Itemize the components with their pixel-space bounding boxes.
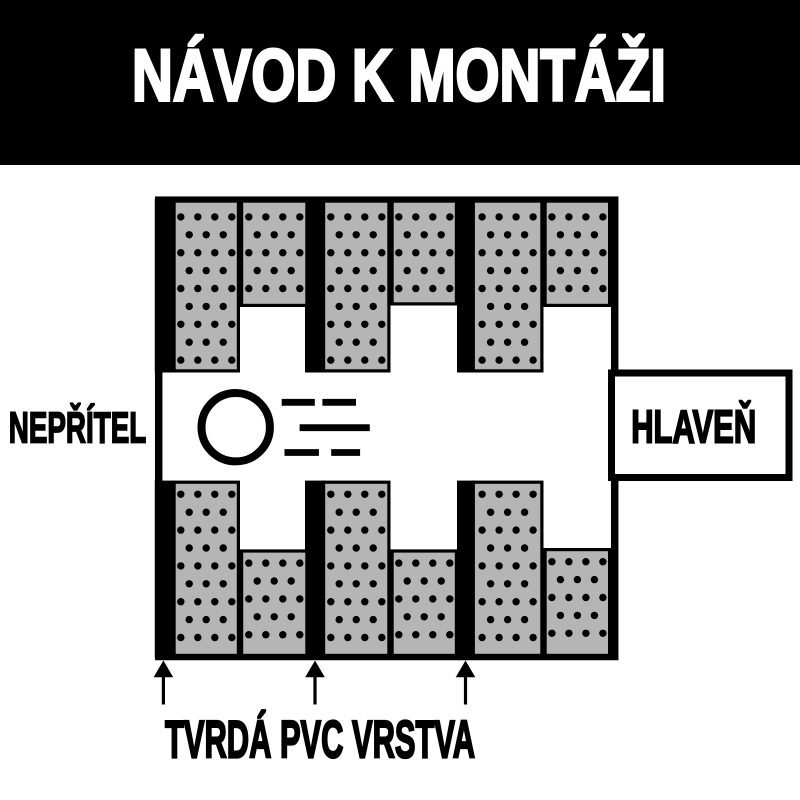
svg-text:NEPŘÍTEL: NEPŘÍTEL [9, 404, 147, 453]
svg-text:TVRDÁ PVC VRSTVA: TVRDÁ PVC VRSTVA [165, 712, 475, 770]
svg-text:NÁVOD K MONTÁŽI: NÁVOD K MONTÁŽI [132, 34, 666, 117]
svg-text:HLAVEŇ: HLAVEŇ [631, 401, 756, 453]
